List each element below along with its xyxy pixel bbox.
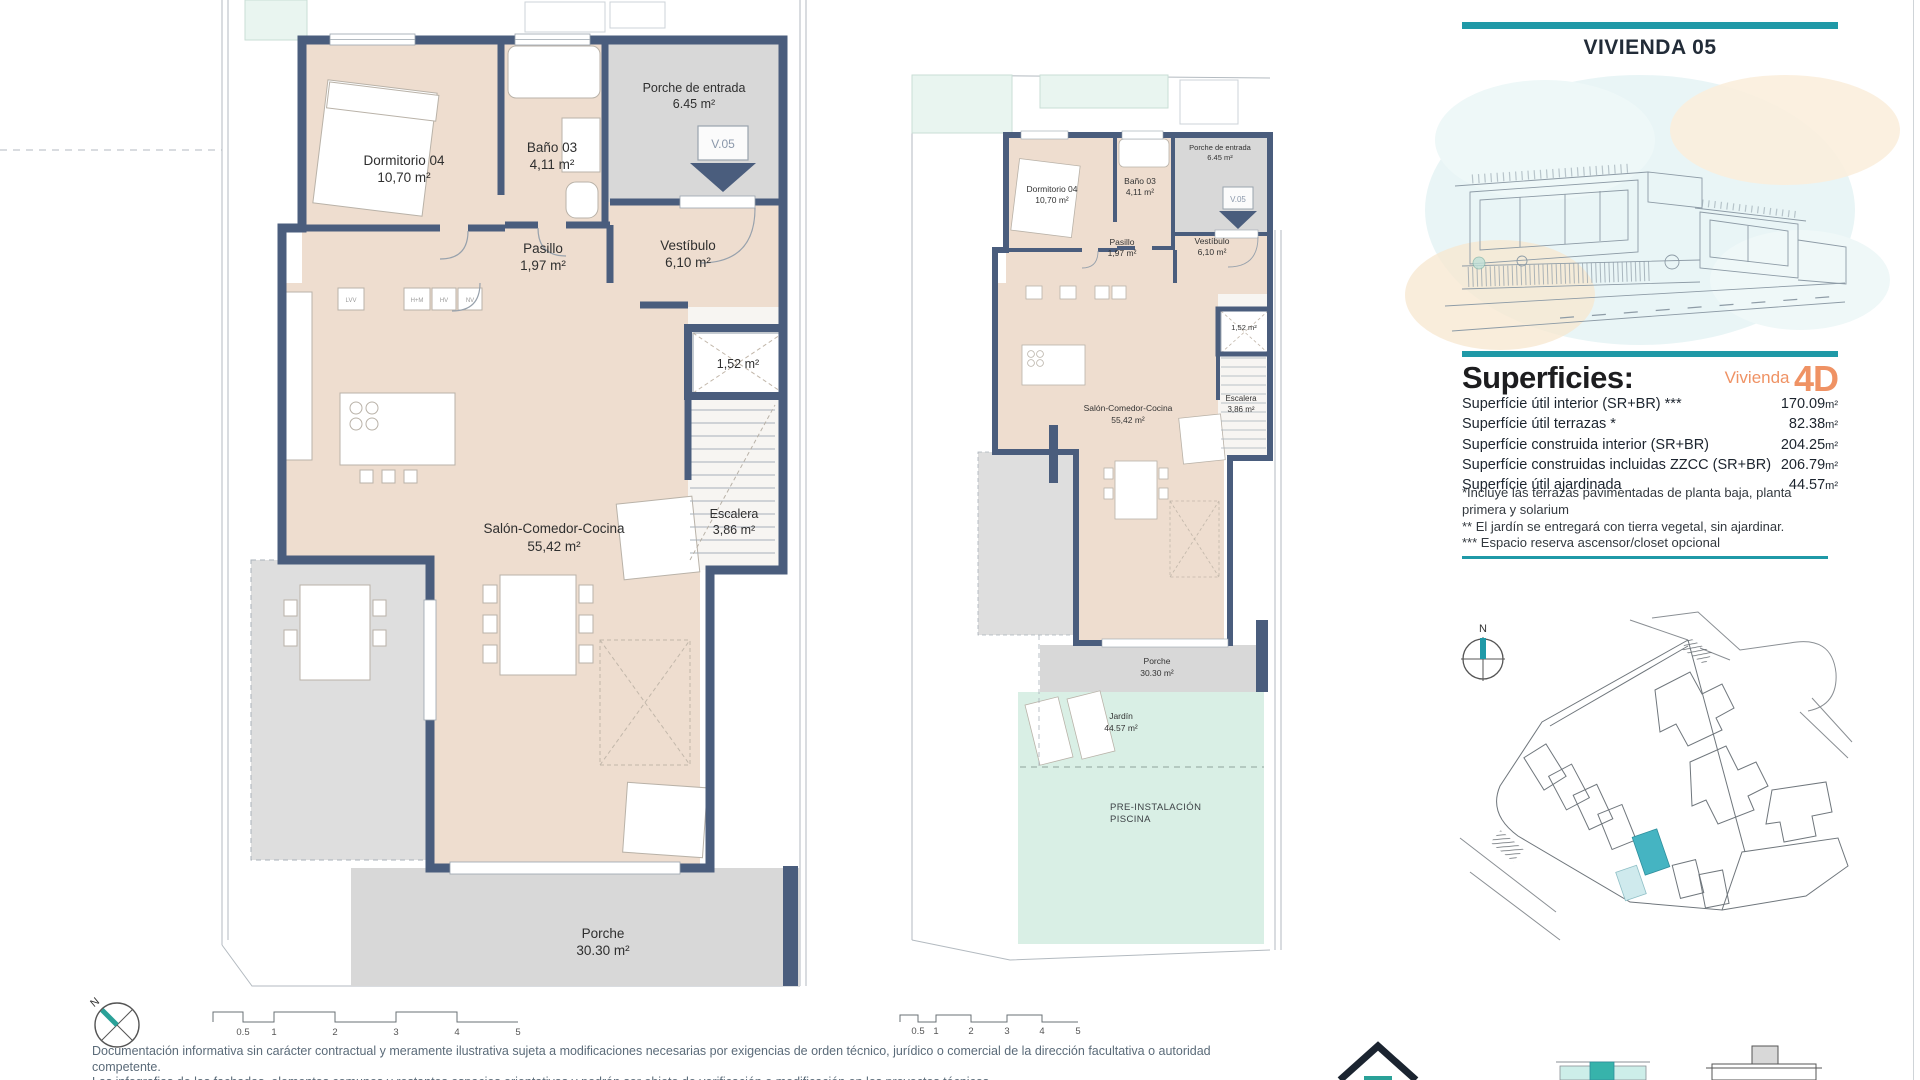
scale-label: 4 xyxy=(1039,1026,1044,1037)
area-pasillo: 1,97 m² xyxy=(520,258,566,273)
footnotes: *Incluye las terrazas pavimentadas de pl… xyxy=(1462,485,1842,552)
scale-label: 3 xyxy=(1004,1026,1009,1037)
area2-porche-entrada: 6.45 m² xyxy=(1207,153,1233,162)
north-needle-icon xyxy=(1480,638,1486,659)
area-dormitorio: 10,70 m² xyxy=(377,170,431,185)
disclaimer-line-1: Documentación informativa sin carácter c… xyxy=(92,1044,1272,1075)
label2-salon: Salón-Comedor-Cocina xyxy=(1084,403,1173,413)
area2-pasillo: 1,97 m² xyxy=(1108,248,1137,258)
label-porche: Porche xyxy=(582,926,625,941)
area-escalera: 3,86 m² xyxy=(713,523,755,537)
scale-label: 2 xyxy=(332,1027,337,1038)
kitchen-tag-1: H+M xyxy=(411,298,424,304)
footnote-1b: primera y solarium xyxy=(1462,502,1842,519)
label-dormitorio: Dormitorio 04 xyxy=(363,153,445,168)
terrace-table xyxy=(300,585,370,680)
kitchen-counter xyxy=(284,292,312,460)
area2-escalera: 3,86 m² xyxy=(1227,405,1254,414)
label2-bano: Baño 03 xyxy=(1124,176,1156,186)
scale-label: 1 xyxy=(271,1027,276,1038)
label-vestibulo: Vestíbulo xyxy=(660,238,716,253)
row-label: Superfície construidas incluidas ZZCC (S… xyxy=(1462,456,1771,476)
scale-bar-middle xyxy=(900,1015,1078,1022)
elevation-icon-gray xyxy=(1706,1046,1822,1080)
footer-icons xyxy=(1340,1046,1822,1080)
page-title: VIVIENDA 05 xyxy=(1462,36,1838,60)
scale-bar-middle-labels: 0.5 1 2 3 4 5 xyxy=(911,1026,1080,1037)
area-jardin: 44.57 m² xyxy=(1104,723,1138,733)
neighbor-garden-2a xyxy=(912,75,1012,133)
row-unit: m² xyxy=(1825,460,1838,472)
footer-compass: N xyxy=(88,996,139,1047)
area-porche-entrada: 6.45 m² xyxy=(673,97,715,111)
superficies-row: Superfície construida interior (SR+BR) 2… xyxy=(1462,436,1838,456)
label2-porche: Porche xyxy=(1144,656,1171,666)
scale-label: 3 xyxy=(393,1027,398,1038)
row-unit: m² xyxy=(1825,399,1838,411)
footnotes-underline xyxy=(1462,556,1828,559)
crossing-hatch xyxy=(1490,830,1523,862)
elevation-icon-teal xyxy=(1556,1062,1650,1080)
area-shaft: 1,52 m² xyxy=(717,357,759,371)
bathtub xyxy=(508,46,600,98)
site-north-label: N xyxy=(1479,623,1487,635)
neighbor-garden-2b xyxy=(1040,75,1168,108)
area-porche: 30.30 m² xyxy=(576,943,630,958)
area2-shaft: 1,52 m² xyxy=(1231,323,1257,332)
area2-vestibulo: 6,10 m² xyxy=(1198,247,1227,257)
label2-pasillo: Pasillo xyxy=(1109,237,1134,247)
floor-plan-ground: V.05 Dormitorio 04 10,70 m² Baño 03 4,11… xyxy=(0,0,806,986)
row-label: Superfície útil terrazas * xyxy=(1462,415,1616,435)
label-salon: Salón-Comedor-Cocina xyxy=(483,521,625,536)
floor-plan-plot: V.05 Dormitorio 04 10,70 m² Baño 03 4,11… xyxy=(912,75,1281,960)
label-piscina-2: PISCINA xyxy=(1110,814,1151,825)
row-value: 82.38 xyxy=(1789,416,1825,432)
row-value: 170.09 xyxy=(1781,396,1825,412)
area2-dormitorio: 10,70 m² xyxy=(1035,195,1069,205)
unit-tag-text: V.05 xyxy=(711,137,735,151)
title-accent-bar xyxy=(1462,22,1838,29)
scale-label: 0.5 xyxy=(911,1026,924,1037)
sofa xyxy=(616,496,700,580)
footnote-1a: *Incluye las terrazas pavimentadas de pl… xyxy=(1462,485,1842,502)
disclaimer-line-2: Las infografias de las fachadas, element… xyxy=(92,1075,1272,1080)
label-porche-entrada: Porche de entrada xyxy=(643,81,746,95)
footnote-3: *** Espacio reserva ascensor/closet opci… xyxy=(1462,535,1842,552)
scale-label: 2 xyxy=(968,1026,973,1037)
row-unit: m² xyxy=(1825,440,1838,452)
room-porche-bottom xyxy=(351,868,800,986)
row-value: 204.25 xyxy=(1781,437,1825,453)
site-compass: N xyxy=(1461,623,1505,681)
armchair xyxy=(623,782,708,857)
area-salon: 55,42 m² xyxy=(527,539,581,554)
label2-vestibulo: Vestíbulo xyxy=(1195,236,1230,246)
site-plan: N xyxy=(1460,612,1852,940)
superficies-row: Superfície construidas incluidas ZZCC (S… xyxy=(1462,456,1838,476)
superficies-accent-bar xyxy=(1462,351,1838,357)
kitchen-tag-0: LVV xyxy=(346,298,357,304)
label-piscina-1: PRE-INSTALACIÓN xyxy=(1110,802,1201,813)
label-bano: Baño 03 xyxy=(527,140,577,155)
superficies-row: Superfície útil terrazas * 82.38m² xyxy=(1462,415,1838,435)
room-porche-entrada xyxy=(605,40,783,202)
scale-label: 1 xyxy=(933,1026,938,1037)
footnote-2: ** El jardín se entregará con tierra veg… xyxy=(1462,519,1842,536)
vivienda-code: 4D xyxy=(1794,358,1838,399)
row-label: Superfície útil interior (SR+BR) *** xyxy=(1462,395,1682,415)
scale-bar-left xyxy=(213,1012,518,1022)
row-label: Superfície construida interior (SR+BR) xyxy=(1462,436,1709,456)
superficies-heading: Superficies: xyxy=(1462,360,1633,396)
room-pasillo xyxy=(302,225,610,283)
label-jardin: Jardín xyxy=(1109,711,1133,721)
roof-chevron-icon xyxy=(1340,1046,1416,1080)
vivienda-code-badge: Vivienda 4D xyxy=(1655,358,1838,400)
scale-label: 5 xyxy=(1075,1026,1080,1037)
scale-label: 0.5 xyxy=(236,1027,249,1038)
label-escalera: Escalera xyxy=(710,507,759,521)
area-bano: 4,11 m² xyxy=(530,157,575,172)
vivienda-word: Vivienda xyxy=(1725,368,1790,387)
area-vestibulo: 6,10 m² xyxy=(665,255,711,270)
site-streets xyxy=(1460,612,1852,940)
dining-table xyxy=(500,575,576,675)
row-value: 206.79 xyxy=(1781,457,1825,473)
sketch-plant xyxy=(1473,257,1485,269)
area2-salon: 55,42 m² xyxy=(1111,415,1145,425)
building-sketch xyxy=(1405,75,1900,350)
plan-sheet-page: V.05 Dormitorio 04 10,70 m² Baño 03 4,11… xyxy=(0,0,1920,1080)
page-edge-line xyxy=(1913,0,1914,1080)
label2-escalera: Escalera xyxy=(1225,394,1257,403)
unit-tag-text-2: V.05 xyxy=(1230,195,1246,204)
neighbor-garden-strip xyxy=(245,0,307,40)
kitchen-tag-3: NV xyxy=(466,298,474,304)
wc xyxy=(566,182,598,218)
footer-north-needle-icon xyxy=(102,1010,117,1025)
kitchen-tag-2: HV xyxy=(440,298,448,304)
disclaimer: Documentación informativa sin carácter c… xyxy=(92,1044,1272,1080)
scale-label: 4 xyxy=(454,1027,459,1038)
superficies-table: Superfície útil interior (SR+BR) *** 170… xyxy=(1462,395,1838,496)
scale-label: 5 xyxy=(515,1027,520,1038)
superficies-row: Superfície útil interior (SR+BR) *** 170… xyxy=(1462,395,1838,415)
highlighted-garden xyxy=(1616,865,1647,901)
scale-bar-left-labels: 0.5 1 2 3 4 5 xyxy=(236,1027,520,1038)
label2-dormitorio: Dormitorio 04 xyxy=(1026,184,1077,194)
area2-porche: 30.30 m² xyxy=(1140,668,1174,678)
footer-north-label: N xyxy=(88,996,102,1010)
label-pasillo: Pasillo xyxy=(523,241,563,256)
area2-bano: 4,11 m² xyxy=(1126,187,1154,197)
site-parcel xyxy=(1497,640,1848,910)
label2-porche-entrada: Porche de entrada xyxy=(1189,143,1252,152)
row-unit: m² xyxy=(1825,419,1838,431)
